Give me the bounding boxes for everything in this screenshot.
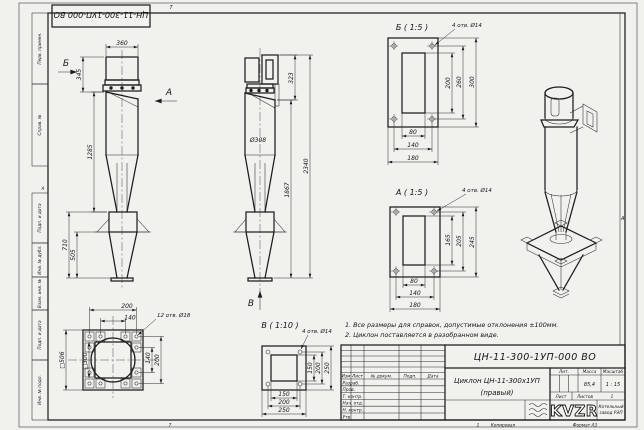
detail-a-dim-205: 205 <box>456 235 463 247</box>
copied-by-label: Копировал <box>491 423 516 429</box>
detail-v-dim-150-v: 150 <box>307 362 314 374</box>
detail-a-dim-245: 245 <box>469 236 476 248</box>
side-label-sprav-no: Справ. № <box>37 114 43 135</box>
col-data: Дата <box>426 374 438 380</box>
side-label-inv-dubl: Инв. № дубл. <box>37 245 43 274</box>
side-dim-1867: 1867 <box>284 182 291 197</box>
detail-v-dim-200-v: 200 <box>315 362 322 374</box>
front-dim-1285: 1285 <box>87 144 94 159</box>
detail-a-dim-140: 140 <box>409 290 421 297</box>
detail-b-dim-80: 80 <box>409 129 417 136</box>
side-label-inv-podl: Инв. № подл. <box>37 375 43 405</box>
front-dim-505: 505 <box>70 249 77 261</box>
row-utv: Утв. <box>343 414 352 420</box>
detail-a-dim-180: 180 <box>409 302 421 309</box>
detail-b-dim-260: 260 <box>456 76 463 88</box>
row-n-kontr: Н. контр. <box>343 408 364 414</box>
side-label-vzam-inv: Взам. инв. № <box>37 278 43 308</box>
detail-a-holes-note: 4 отв. Ø14 <box>462 187 492 194</box>
front-dim-345: 345 <box>76 69 83 81</box>
lit-label: Лит. <box>558 369 569 375</box>
front-dim-710: 710 <box>62 239 69 251</box>
detail-v-title: В ( 1:10 ) <box>261 321 298 330</box>
format-label: Формат А3 <box>573 423 598 429</box>
view-arrow-v-label: В <box>248 299 254 309</box>
base-dim-200-right: 200 <box>154 354 161 366</box>
detail-a-dim-165: 165 <box>445 234 452 246</box>
note-2: 2. Циклон поставляется в разобранном вид… <box>345 331 499 339</box>
row-t-kontr: Т. контр. <box>343 394 363 400</box>
logo-text: KVZR <box>550 402 598 420</box>
side-dim-d308: Ø308 <box>249 137 266 144</box>
base-dim-200-top: 200 <box>121 303 133 310</box>
drawing-name-line2: (правый) <box>481 389 514 397</box>
drawing-name-line1: Циклон ЦН-11-300х1УП <box>454 377 541 385</box>
zone-letter-left: А <box>41 186 45 192</box>
detail-b-dim-180: 180 <box>407 155 419 162</box>
detail-v-dim-250-h: 250 <box>278 407 290 414</box>
side-label-perv-primen: Перв. примен. <box>37 32 43 64</box>
sheets-label: Листов <box>576 394 594 400</box>
base-dim-sq300: □300 <box>82 352 89 369</box>
mass-label: Масса <box>583 369 597 375</box>
note-1: 1. Все размеры для справок, допустимые о… <box>345 321 558 329</box>
side-dim-323: 323 <box>288 72 295 84</box>
side-dim-2340: 2340 <box>303 158 310 173</box>
engineering-drawing: А А 7 7 1 Копировал Формат А3 Перв. прим… <box>0 0 644 430</box>
base-holes-note: 12 отв. Ø18 <box>157 312 191 319</box>
detail-v-dim-150-h: 150 <box>278 391 290 398</box>
front-dim-360: 360 <box>116 40 128 47</box>
drawing-sheet: А А 7 7 1 Копировал Формат А3 Перв. прим… <box>0 0 644 430</box>
detail-v-holes-note: 4 отв. Ø14 <box>302 328 332 335</box>
col-n-dokum: № докум. <box>370 374 392 380</box>
detail-b-holes-note: 4 отв. Ø14 <box>452 22 482 29</box>
zone-letter-right: А <box>620 216 625 222</box>
col-podp: Подп. <box>403 374 416 380</box>
detail-b-dim-140: 140 <box>407 142 419 149</box>
detail-v-dim-200-h: 200 <box>278 399 290 406</box>
detail-b-dim-300: 300 <box>469 76 476 88</box>
scale-value: 1 : 15 <box>606 382 620 388</box>
side-label-podp-data-2: Подп. и дата <box>37 320 43 350</box>
detail-a-dim-80: 80 <box>410 278 418 285</box>
view-arrow-a-label: А <box>165 88 172 98</box>
detail-b-dim-200: 200 <box>445 77 452 89</box>
sheets-value: 1 <box>611 394 614 400</box>
fold-mark-bottom: 7 <box>169 423 172 429</box>
detail-a-title: А ( 1:5 ) <box>395 188 428 197</box>
col-list: Лист <box>351 374 363 380</box>
mass-value: 85,4 <box>584 382 595 388</box>
row-nach-otd: Нач. отд. <box>343 401 364 407</box>
detail-b-title: Б ( 1:5 ) <box>396 23 428 32</box>
side-label-podp-data-1: Подп. и дата <box>37 203 43 233</box>
detail-v-dim-250-v: 250 <box>324 362 331 374</box>
row-razrab: Разраб. <box>343 380 360 386</box>
logo-caption-line1: Котельный <box>598 404 623 410</box>
base-dim-sq506: □506 <box>59 351 66 368</box>
logo-caption-line2: завод РЭП <box>599 410 623 416</box>
view-arrow-b-label: Б <box>63 59 69 69</box>
rotated-doc-number: ЦН-11-300-1УП-000 ВО <box>54 10 149 19</box>
base-dim-140-top: 140 <box>124 315 136 322</box>
doc-number: ЦН-11-300-1УП-000 ВО <box>474 352 597 363</box>
col-izm: Изм <box>342 374 351 380</box>
row-prov: Пров. <box>343 387 356 393</box>
bottom-sheet-num: 1 <box>477 423 480 429</box>
scale-label: Масштаб <box>603 369 624 375</box>
base-dim-140-right: 140 <box>145 352 152 364</box>
sheet-label: Лист <box>555 394 567 400</box>
